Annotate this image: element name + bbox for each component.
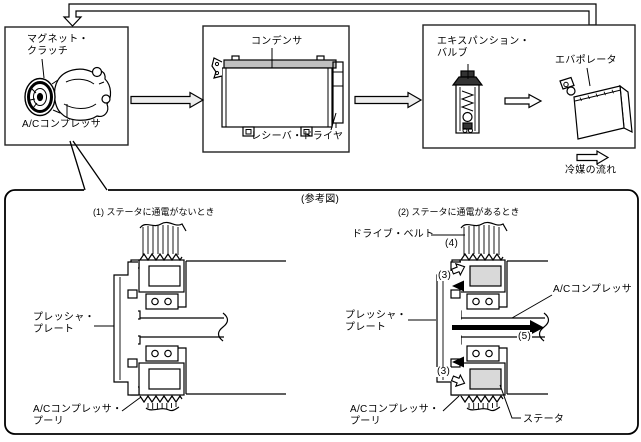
detail-callout-wedge (70, 141, 107, 190)
refrigerant-return-arrow (64, 4, 596, 26)
label-fig1-caption: (1) ステータに通電がないとき (93, 206, 215, 218)
fig1-coil-upper (149, 266, 180, 286)
ac-refrigerant-cycle-diagram: マグネット・ クラッチ A/Cコンプレッサ コンデンサ レシーバ・ドライヤ エキ… (0, 0, 641, 442)
fig1-pressure-plate (114, 262, 138, 395)
flow-arrow-2 (355, 93, 421, 108)
legend-flow-arrow (577, 151, 608, 164)
fig2-stator-coil-upper (470, 266, 501, 286)
label-fig1-pulley: A/Cコンプレッサ・ プーリ (33, 404, 122, 428)
label-receiver-drier: レシーバ・ドライヤ (251, 131, 343, 143)
fig1-coil-lower (149, 369, 180, 389)
diagram-line-art (0, 0, 641, 442)
label-fig2-num5: (5) (517, 332, 532, 342)
expansion-valve-drawing (453, 71, 482, 133)
label-fig2-ac-compressor: A/Cコンプレッサ (553, 284, 632, 296)
flow-arrow-1 (131, 93, 203, 108)
label-fig2-pulley: A/Cコンプレッサ・ プーリ (350, 404, 439, 428)
label-fig2-stator: ステータ (523, 414, 564, 426)
fig2-stator-coil-lower (470, 369, 501, 389)
label-magnet-clutch: マグネット・ クラッチ (27, 34, 89, 58)
label-condenser: コンデンサ (251, 36, 303, 48)
label-fig2-pressure-plate: プレッシャ・ プレート (345, 310, 407, 334)
label-refrigerant-flow-legend: 冷媒の流れ (565, 165, 617, 177)
label-ac-compressor-box1: A/Cコンプレッサ (22, 119, 101, 131)
reference-box (5, 190, 638, 434)
label-reference-title: (参考図) (301, 194, 339, 206)
label-fig2-caption: (2) ステータに通電があるとき (398, 206, 520, 218)
label-expansion-valve: エキスパンション・ バルブ (437, 36, 530, 60)
label-fig2-drive-belt: ドライブ・ベルト (352, 229, 434, 241)
label-evaporator: エバポレータ (555, 55, 617, 67)
label-fig1-pressure-plate: プレッシャ・ プレート (33, 312, 95, 336)
condenser-drawing (212, 56, 343, 136)
label-fig2-num3-lower: (3) (436, 367, 451, 377)
label-fig2-num3-upper: (3) (437, 271, 452, 281)
label-fig2-num4: (4) (444, 239, 459, 249)
